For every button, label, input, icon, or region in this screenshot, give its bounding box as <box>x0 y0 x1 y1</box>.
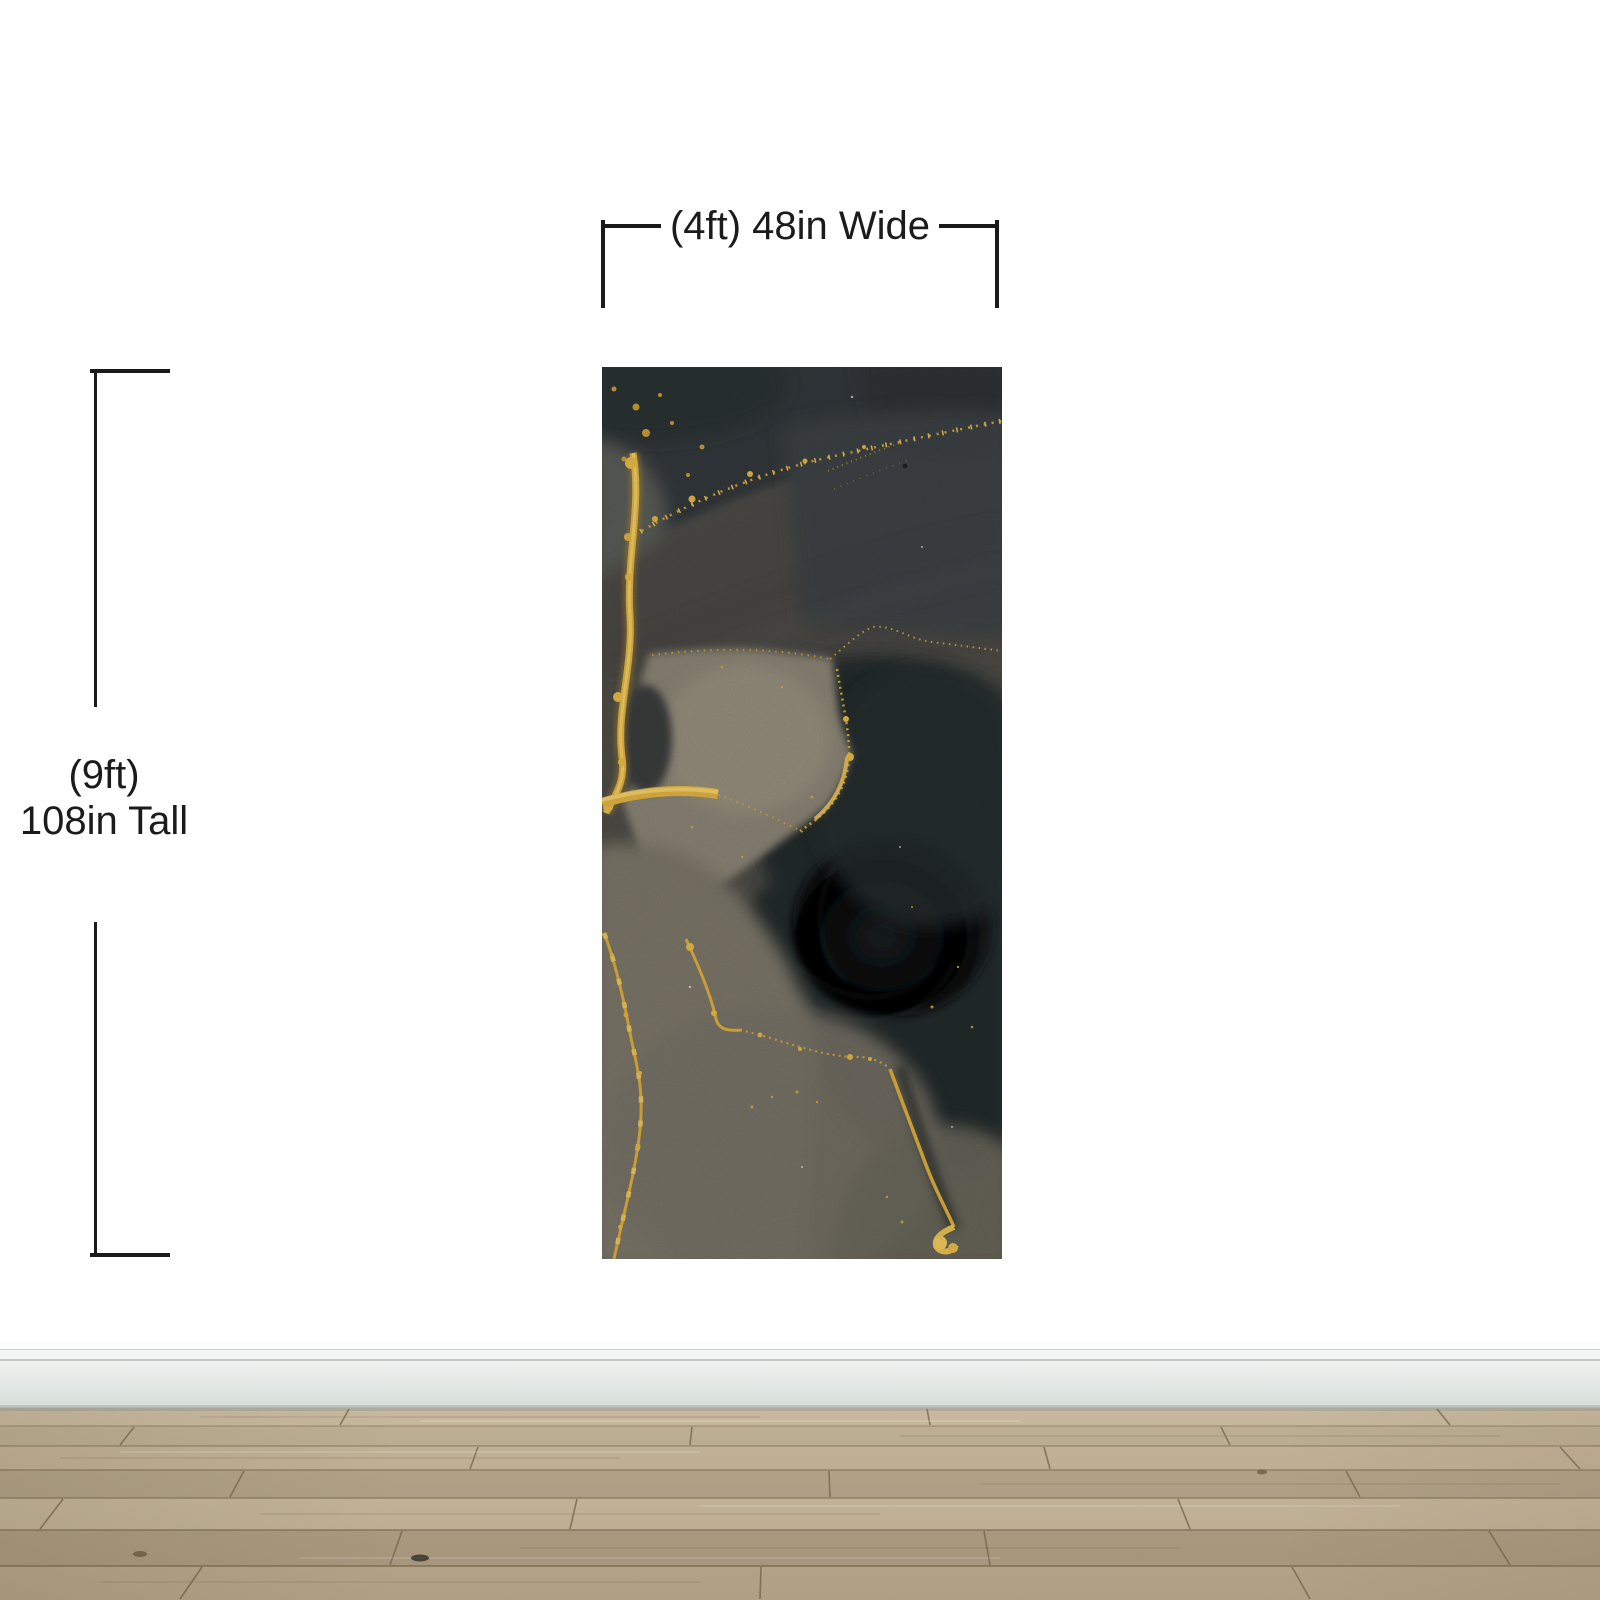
baseboard-face <box>0 1361 1600 1405</box>
height-dim-bottom-tick <box>90 1253 170 1257</box>
mural-artwork <box>602 367 1002 1259</box>
height-dimension-label: (9ft) 108in Tall <box>20 752 188 844</box>
baseboard-upper-face <box>0 1350 1600 1359</box>
wood-floor-planks <box>0 1408 1600 1600</box>
height-dim-top-tick <box>90 369 170 373</box>
height-label-ft: (9ft) <box>20 752 188 798</box>
height-label-in: 108in Tall <box>20 798 188 844</box>
width-dim-left-corner-vertical <box>601 220 605 308</box>
wallpaper-mural-panel <box>602 367 1002 1259</box>
room-scene: (4ft) 48in Wide (9ft) 108in Tall <box>0 0 1600 1600</box>
height-dim-vertical-lower <box>94 922 97 1256</box>
width-dimension-label: (4ft) 48in Wide <box>670 203 930 249</box>
width-dim-right-corner-horizontal <box>939 224 999 228</box>
wood-floor <box>0 1408 1600 1600</box>
baseboard <box>0 1343 1600 1408</box>
width-dim-right-corner-vertical <box>995 220 999 308</box>
height-dim-vertical-upper <box>94 369 97 707</box>
width-dim-left-corner-horizontal <box>601 224 661 228</box>
